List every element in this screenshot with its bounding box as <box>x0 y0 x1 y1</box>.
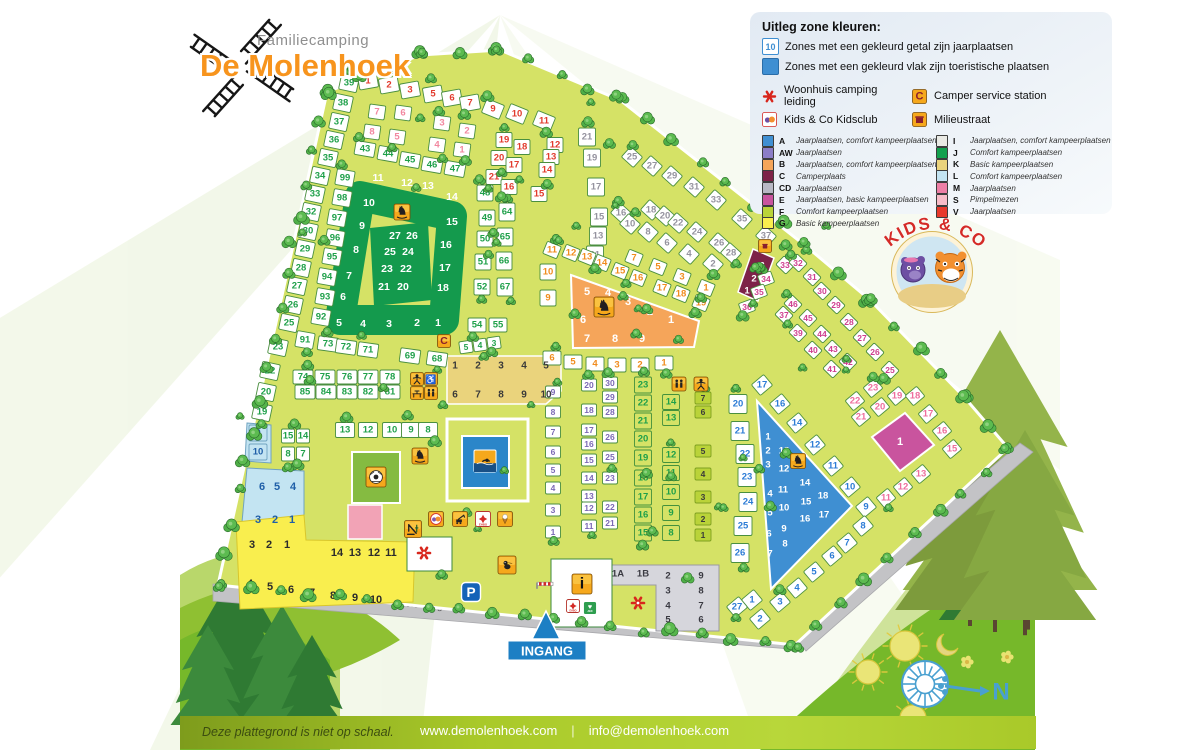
svg-text:72: 72 <box>341 342 352 353</box>
svg-text:14: 14 <box>298 431 309 442</box>
horse-icon: ♞ <box>412 448 428 464</box>
svg-text:71: 71 <box>363 345 374 356</box>
svg-text:10: 10 <box>512 109 523 120</box>
svg-text:8: 8 <box>645 227 650 238</box>
legend-zone-I: IJaarplaatsen, comfort kampeerplaatsen <box>936 135 1108 147</box>
svg-text:39: 39 <box>793 328 803 338</box>
svg-text:46: 46 <box>788 299 798 309</box>
svg-text:2: 2 <box>272 514 278 526</box>
svg-text:15: 15 <box>446 216 458 228</box>
svg-text:6: 6 <box>551 447 556 457</box>
svg-text:25: 25 <box>885 365 895 375</box>
legend-zones: AJaarplaatsen, comfort kampeerplaatsenAW… <box>762 135 1102 229</box>
svg-text:7: 7 <box>300 449 305 460</box>
svg-text:27: 27 <box>389 230 401 242</box>
playground-icon <box>694 377 708 391</box>
svg-text:12: 12 <box>810 440 821 451</box>
svg-text:3: 3 <box>498 361 504 372</box>
horse-icon: ♞ <box>791 454 806 469</box>
legend-zone-CD: CDJaarplaatsen <box>762 182 930 194</box>
svg-text:15: 15 <box>594 212 605 223</box>
svg-text:14: 14 <box>542 165 553 176</box>
svg-text:24: 24 <box>402 246 414 258</box>
svg-text:91: 91 <box>300 335 311 346</box>
svg-text:92: 92 <box>316 312 327 323</box>
svg-text:10: 10 <box>543 267 554 278</box>
svg-text:25: 25 <box>284 318 295 329</box>
svg-text:8: 8 <box>698 586 703 597</box>
svg-text:13: 13 <box>916 469 927 480</box>
svg-text:i: i <box>580 576 584 593</box>
svg-text:12: 12 <box>584 503 594 513</box>
svg-text:11: 11 <box>539 116 550 127</box>
svg-text:10: 10 <box>253 447 264 458</box>
svg-text:22: 22 <box>638 398 649 409</box>
legend-zone-F: FComfort kampeerplaatsen <box>762 206 930 218</box>
legend-facility-0: Woonhuis camping leiding <box>762 84 912 108</box>
svg-text:2: 2 <box>757 614 762 625</box>
svg-text:17: 17 <box>584 425 594 435</box>
svg-text:7: 7 <box>551 427 556 437</box>
svg-text:6: 6 <box>829 551 834 562</box>
campground-map-page: MolenwegMolenweg393837363534333230292827… <box>0 0 1200 750</box>
svg-text:16: 16 <box>937 426 948 437</box>
svg-text:7: 7 <box>701 393 706 403</box>
svg-text:4: 4 <box>478 340 483 350</box>
svg-text:11: 11 <box>778 485 789 496</box>
svg-text:95: 95 <box>327 252 338 263</box>
svg-text:4: 4 <box>665 601 671 612</box>
svg-text:1: 1 <box>452 361 458 372</box>
svg-text:16: 16 <box>616 208 627 219</box>
number-swatch: 10 <box>762 38 779 55</box>
svg-text:5: 5 <box>811 567 817 578</box>
svg-text:17: 17 <box>439 262 451 274</box>
svg-text:19: 19 <box>892 391 903 402</box>
svg-text:6: 6 <box>549 353 554 364</box>
svg-text:14: 14 <box>792 418 803 429</box>
svg-text:23: 23 <box>605 473 615 483</box>
legend-facility-2: Kids & Co Kidsclub <box>762 112 912 127</box>
svg-text:1: 1 <box>284 539 290 551</box>
svg-text:5: 5 <box>336 317 342 329</box>
milieu-icon <box>759 240 772 253</box>
svg-text:22: 22 <box>400 263 412 275</box>
svg-text:7: 7 <box>631 253 636 264</box>
svg-text:6: 6 <box>698 615 703 626</box>
svg-text:29: 29 <box>300 244 311 255</box>
bird-icon <box>498 556 516 574</box>
svg-text:33: 33 <box>310 189 321 200</box>
legend-facility-1: CCamper service station <box>912 84 1097 108</box>
svg-text:3: 3 <box>765 460 770 471</box>
svg-text:14: 14 <box>584 473 594 483</box>
svg-text:3: 3 <box>551 505 556 515</box>
poolicon-icon <box>474 450 496 472</box>
svg-text:24: 24 <box>692 227 703 238</box>
svg-text:1: 1 <box>459 145 465 156</box>
horse-icon: ♞ <box>394 204 410 220</box>
svg-text:13: 13 <box>349 547 361 559</box>
svg-text:21: 21 <box>378 281 390 293</box>
legend-zone-V: VJaarplaatsen <box>936 206 1108 218</box>
info-icon: i <box>572 574 592 594</box>
ehbo-icon: EHBO <box>476 512 491 527</box>
svg-text:♞: ♞ <box>397 205 407 218</box>
svg-text:5: 5 <box>274 481 280 493</box>
svg-text:44: 44 <box>817 329 827 339</box>
svg-text:9: 9 <box>352 592 358 604</box>
svg-text:25: 25 <box>605 452 615 462</box>
svg-text:3: 3 <box>679 272 684 283</box>
svg-text:16: 16 <box>638 510 649 521</box>
svg-text:68: 68 <box>432 354 443 365</box>
legend-panel: Uitleg zone kleuren: 10 Zones met een ge… <box>750 12 1112 214</box>
svg-text:12: 12 <box>368 547 380 559</box>
svg-text:12: 12 <box>779 464 790 475</box>
svg-text:96: 96 <box>330 233 341 244</box>
svg-text:17: 17 <box>509 160 520 171</box>
svg-text:4: 4 <box>794 583 800 594</box>
football-icon <box>366 467 386 487</box>
svg-text:5: 5 <box>464 342 469 352</box>
svg-text:13: 13 <box>582 252 593 263</box>
icecream-icon <box>498 512 513 527</box>
svg-text:2: 2 <box>414 317 420 329</box>
ehbo-icon: EHBO <box>567 600 580 613</box>
svg-text:26: 26 <box>406 230 418 242</box>
compass-north-label: N <box>992 679 1009 706</box>
svg-text:25: 25 <box>384 246 396 258</box>
svg-text:14: 14 <box>666 397 677 408</box>
svg-text:9: 9 <box>521 390 527 401</box>
svg-text:10: 10 <box>387 425 398 436</box>
svg-text:20: 20 <box>660 211 671 222</box>
svg-text:4: 4 <box>360 318 366 330</box>
svg-text:29: 29 <box>831 300 841 310</box>
svg-text:19: 19 <box>638 453 649 464</box>
parking-icon: P <box>462 583 481 602</box>
svg-text:8: 8 <box>860 521 865 532</box>
svg-text:2: 2 <box>475 361 481 372</box>
svg-text:10: 10 <box>779 503 790 514</box>
legend-facilities: Woonhuis camping leidingCCamper service … <box>762 84 1102 127</box>
kidsclub-icon <box>762 112 777 127</box>
svg-text:12: 12 <box>898 482 909 493</box>
svg-text:10: 10 <box>363 197 375 209</box>
svg-text:♞: ♞ <box>598 299 611 315</box>
svg-text:15: 15 <box>534 189 545 200</box>
svg-text:16: 16 <box>633 273 644 284</box>
svg-text:78: 78 <box>385 372 396 383</box>
svg-text:23: 23 <box>868 383 879 394</box>
svg-text:27: 27 <box>292 281 303 292</box>
svg-text:16: 16 <box>584 439 594 449</box>
svg-text:6: 6 <box>766 529 771 540</box>
svg-text:22: 22 <box>673 218 684 229</box>
svg-text:10: 10 <box>540 390 552 401</box>
svg-text:1: 1 <box>435 317 441 329</box>
svg-text:16: 16 <box>775 399 786 410</box>
svg-text:8: 8 <box>353 244 359 256</box>
svg-text:1: 1 <box>703 283 709 294</box>
svg-text:94: 94 <box>322 272 333 283</box>
svg-text:18: 18 <box>584 405 594 415</box>
svg-text:26: 26 <box>288 300 299 311</box>
svg-text:5: 5 <box>655 262 661 273</box>
svg-text:18: 18 <box>437 282 449 294</box>
svg-text:12: 12 <box>550 140 561 151</box>
svg-text:55: 55 <box>493 320 504 331</box>
legend-zone-E: EJaarplaatsen, basic kampeerplaatsen <box>762 194 930 206</box>
svg-text:26: 26 <box>870 347 880 357</box>
svg-text:16: 16 <box>440 239 452 251</box>
legend-title: Uitleg zone kleuren: <box>762 20 1102 34</box>
svg-text:1A: 1A <box>612 569 624 580</box>
svg-text:35: 35 <box>754 287 764 297</box>
legend-zone-C: CCamperplaats <box>762 170 930 182</box>
svg-text:28: 28 <box>296 263 307 274</box>
svg-text:84: 84 <box>321 387 332 398</box>
svg-text:27: 27 <box>732 602 743 613</box>
svg-text:27: 27 <box>647 161 658 172</box>
svg-text:1: 1 <box>701 530 706 540</box>
svg-text:9: 9 <box>545 293 550 304</box>
legend-zone-J: JComfort kampeerplaatsen <box>936 147 1108 159</box>
svg-text:3: 3 <box>701 492 706 502</box>
svg-text:25: 25 <box>738 521 749 532</box>
svg-text:8: 8 <box>668 528 673 539</box>
svg-text:18: 18 <box>517 142 528 153</box>
svg-text:49: 49 <box>482 213 493 224</box>
svg-text:16: 16 <box>800 514 811 525</box>
svg-text:6: 6 <box>452 390 458 401</box>
svg-text:34: 34 <box>761 274 771 284</box>
svg-text:45: 45 <box>803 313 813 323</box>
svg-text:INGANG: INGANG <box>521 644 573 659</box>
svg-text:83: 83 <box>342 387 353 398</box>
svg-text:85: 85 <box>300 387 311 398</box>
svg-text:9: 9 <box>359 220 365 232</box>
svg-text:3: 3 <box>439 118 444 129</box>
svg-text:2: 2 <box>765 446 770 457</box>
legend-zone-B: BJaarplaatsen, comfort kampeerplaatsen <box>762 159 930 171</box>
svg-text:67: 67 <box>500 282 511 293</box>
svg-text:EHBO: EHBO <box>570 609 577 612</box>
svg-text:5: 5 <box>543 361 549 372</box>
svg-text:15: 15 <box>584 455 594 465</box>
svg-text:33: 33 <box>711 195 722 206</box>
svg-text:6: 6 <box>340 291 346 303</box>
legend-zone-M: MJaarplaatsen <box>936 182 1108 194</box>
svg-text:20: 20 <box>638 434 649 445</box>
svg-text:5: 5 <box>267 581 273 593</box>
milieu-icon <box>912 112 927 127</box>
svg-text:9: 9 <box>408 425 413 436</box>
legend-zone-K: KBasic kampeerplaatsen <box>936 159 1108 171</box>
legend-rule-numbers-text: Zones met een gekleurd getal zijn jaarpl… <box>785 41 1013 53</box>
svg-text:21: 21 <box>856 412 867 423</box>
scale-disclaimer: Deze plattegrond is niet op schaal. <box>202 725 394 739</box>
svg-text:8: 8 <box>498 390 504 401</box>
legend-zone-G: GBasic kampeerplaatsen <box>762 218 930 230</box>
svg-text:73: 73 <box>323 339 334 350</box>
svg-text:20: 20 <box>584 380 594 390</box>
svg-text:EHBO: EHBO <box>479 523 488 527</box>
svg-text:3: 3 <box>665 586 670 597</box>
bench-icon <box>411 387 424 400</box>
svg-text:20: 20 <box>733 399 744 410</box>
svg-text:8: 8 <box>425 425 430 436</box>
svg-text:1: 1 <box>551 527 556 537</box>
svg-text:4: 4 <box>592 359 598 370</box>
svg-text:22: 22 <box>850 396 861 407</box>
playground-icon <box>411 373 424 386</box>
svg-text:7: 7 <box>767 549 772 560</box>
svg-text:♞: ♞ <box>793 455 803 467</box>
svg-text:7: 7 <box>346 270 352 282</box>
svg-text:7: 7 <box>467 98 472 109</box>
svg-text:6: 6 <box>664 238 669 249</box>
svg-text:P: P <box>466 585 475 600</box>
svg-text:18: 18 <box>676 289 687 300</box>
svg-text:15: 15 <box>283 431 294 442</box>
svg-text:11: 11 <box>547 245 558 256</box>
svg-text:11: 11 <box>881 493 892 504</box>
svg-text:30: 30 <box>605 378 615 388</box>
svg-text:3: 3 <box>255 514 261 526</box>
svg-text:4: 4 <box>434 140 440 151</box>
svg-text:18: 18 <box>646 205 657 216</box>
svg-text:16: 16 <box>504 182 515 193</box>
svg-text:26: 26 <box>714 238 725 249</box>
legend-rule-numbers: 10 Zones met een gekleurd getal zijn jaa… <box>762 38 1102 55</box>
svg-text:1: 1 <box>668 314 674 326</box>
svg-text:35: 35 <box>323 153 334 164</box>
svg-text:98: 98 <box>337 193 348 204</box>
svg-text:13: 13 <box>584 491 594 501</box>
svg-text:46: 46 <box>427 160 438 171</box>
svg-text:32: 32 <box>306 207 317 218</box>
svg-text:52: 52 <box>477 282 488 293</box>
svg-text:11: 11 <box>585 521 594 531</box>
svg-text:14: 14 <box>446 191 458 203</box>
svg-text:2: 2 <box>266 539 272 551</box>
svg-text:AED: AED <box>587 610 592 613</box>
horse-icon: ♞ <box>594 297 614 317</box>
nums-zone-M-square: 1 <box>897 436 903 448</box>
svg-text:13: 13 <box>593 231 604 242</box>
svg-text:12: 12 <box>666 450 677 461</box>
svg-text:25: 25 <box>627 152 638 163</box>
svg-text:9: 9 <box>698 571 703 582</box>
svg-text:13: 13 <box>666 413 677 424</box>
svg-text:8: 8 <box>612 333 618 345</box>
svg-text:23: 23 <box>742 472 753 483</box>
plots-13-row: 13121098 <box>336 423 438 438</box>
svg-text:93: 93 <box>320 292 331 303</box>
svg-text:4: 4 <box>686 249 692 260</box>
slide-icon <box>405 521 422 538</box>
svg-text:23: 23 <box>638 380 649 391</box>
svg-text:20: 20 <box>494 153 505 164</box>
svg-text:19: 19 <box>587 153 598 164</box>
svg-text:31: 31 <box>689 182 700 193</box>
svg-text:1: 1 <box>749 595 755 606</box>
svg-text:4: 4 <box>521 361 527 372</box>
svg-text:54: 54 <box>472 320 483 331</box>
svg-text:15: 15 <box>615 266 626 277</box>
footer-bar: Deze plattegrond is niet op schaal. www.… <box>180 716 1036 749</box>
svg-text:8: 8 <box>782 539 787 550</box>
svg-text:82: 82 <box>363 387 374 398</box>
svg-text:30: 30 <box>817 286 827 296</box>
svg-text:9: 9 <box>863 502 868 513</box>
svg-text:64: 64 <box>502 207 513 218</box>
svg-text:5: 5 <box>430 89 436 100</box>
svg-text:14: 14 <box>331 547 344 559</box>
svg-text:9: 9 <box>490 104 495 115</box>
svg-text:5: 5 <box>701 446 706 456</box>
svg-text:5: 5 <box>570 357 576 368</box>
svg-text:10: 10 <box>666 487 677 498</box>
svg-text:31: 31 <box>807 272 817 282</box>
legend-rule-areas-text: Zones met een gekleurd vlak zijn toerist… <box>785 61 1049 73</box>
svg-text:5: 5 <box>584 286 590 298</box>
legend-zone-L: LComfort kampeerplaatsen <box>936 170 1108 182</box>
svg-text:17: 17 <box>638 492 649 503</box>
svg-text:7: 7 <box>698 601 703 612</box>
kidsclub-icon <box>429 512 444 527</box>
svg-text:29: 29 <box>667 171 678 182</box>
svg-text:2: 2 <box>665 571 670 582</box>
svg-text:11: 11 <box>828 461 839 472</box>
site-logo: Familiecamping De Molenhoek <box>160 2 420 152</box>
svg-text:21: 21 <box>638 416 649 427</box>
svg-text:47: 47 <box>450 164 461 175</box>
email-link[interactable]: info@demolenhoek.com <box>589 723 729 738</box>
svg-text:21: 21 <box>735 426 746 437</box>
svg-text:2: 2 <box>464 126 469 137</box>
camper-icon: C <box>912 89 927 104</box>
svg-text:99: 99 <box>340 173 351 184</box>
svg-text:21: 21 <box>582 132 593 143</box>
svg-text:6: 6 <box>288 584 294 596</box>
svg-text:3: 3 <box>249 539 255 551</box>
svg-text:20: 20 <box>875 402 886 413</box>
svg-text:1: 1 <box>765 432 771 443</box>
svg-text:19: 19 <box>499 135 510 146</box>
svg-text:77: 77 <box>363 372 374 383</box>
svg-text:17: 17 <box>819 510 830 521</box>
svg-text:18: 18 <box>910 391 921 402</box>
svg-text:8: 8 <box>285 449 290 460</box>
logo-title: De Molenhoek <box>200 48 410 84</box>
area-swatch <box>762 58 779 75</box>
svg-text:43: 43 <box>828 344 838 354</box>
svg-text:C: C <box>916 90 924 102</box>
svg-text:12: 12 <box>566 248 577 259</box>
website-link[interactable]: www.demolenhoek.com <box>420 723 557 738</box>
svg-text:17: 17 <box>923 409 934 420</box>
svg-text:1B: 1B <box>637 569 649 580</box>
svg-text:10: 10 <box>625 219 636 230</box>
svg-text:69: 69 <box>405 351 416 362</box>
svg-text:41: 41 <box>827 364 837 374</box>
svg-text:2: 2 <box>751 274 756 285</box>
svg-text:20: 20 <box>397 281 409 293</box>
svg-text:29: 29 <box>605 392 615 402</box>
